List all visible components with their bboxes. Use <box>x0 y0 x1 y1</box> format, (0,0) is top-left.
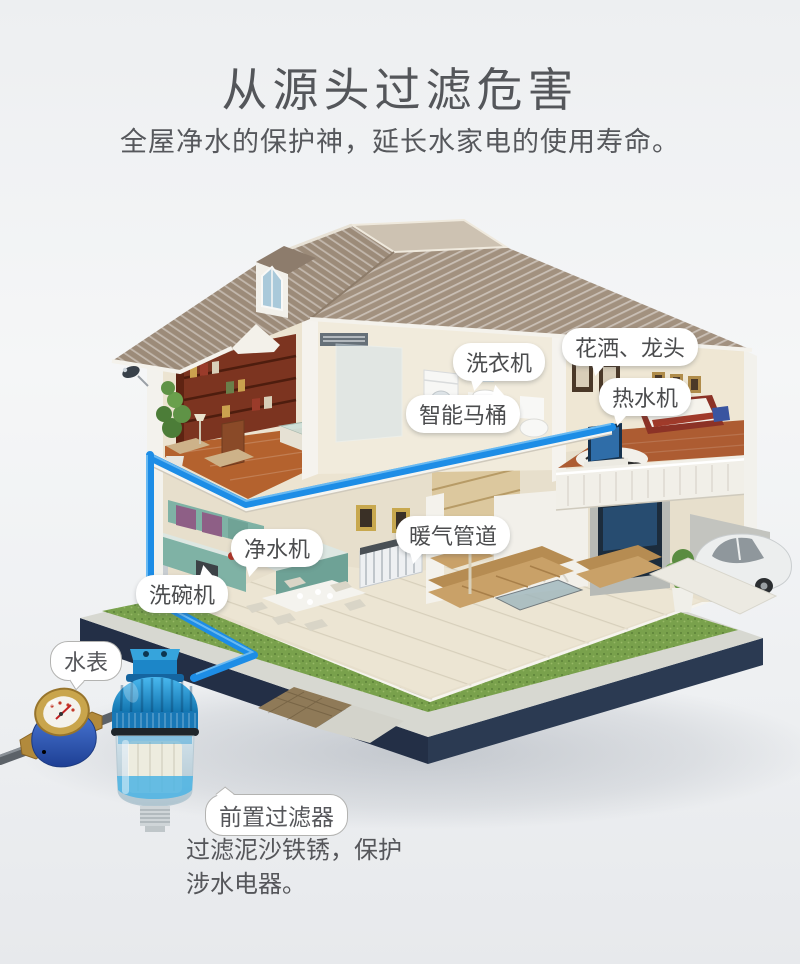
callout-shower-faucet-label: 花洒、龙头 <box>575 336 685 361</box>
callout-heating-pipes: 暖气管道 <box>396 516 510 554</box>
prefilter-description-line1: 过滤泥沙铁锈，保护 <box>186 834 402 868</box>
callout-water-heater: 热水机 <box>599 378 691 416</box>
callout-smart-toilet: 智能马桶 <box>406 395 520 433</box>
page-title: 从源头过滤危害 <box>0 54 800 120</box>
callout-dishwasher-label: 洗碗机 <box>149 583 215 608</box>
callout-shower-faucet: 花洒、龙头 <box>562 328 698 366</box>
callout-washing-machine: 洗衣机 <box>453 343 545 381</box>
callout-prefilter-label: 前置过滤器 <box>219 804 334 830</box>
callout-smart-toilet-label: 智能马桶 <box>419 403 507 428</box>
callout-water-heater-label: 热水机 <box>612 386 678 411</box>
callout-water-meter-label: 水表 <box>64 650 108 675</box>
callout-heating-pipes-label: 暖气管道 <box>409 524 497 549</box>
hall-picture-inner <box>360 509 372 527</box>
prefilter-description-line2: 涉水电器。 <box>186 868 402 902</box>
page-subtitle: 全屋净水的保护神，延长水家电的使用寿命。 <box>0 120 800 159</box>
callout-water-meter: 水表 <box>50 641 122 681</box>
callout-water-purifier: 净水机 <box>231 529 323 567</box>
prefilter-description: 过滤泥沙铁锈，保护 涉水电器。 <box>186 834 402 902</box>
callout-washing-machine-label: 洗衣机 <box>466 351 532 376</box>
promo-page: 从源头过滤危害 全屋净水的保护神，延长水家电的使用寿命。 洗衣机 花洒、龙头 热… <box>0 0 800 964</box>
callout-water-purifier-label: 净水机 <box>244 537 310 562</box>
callout-dishwasher: 洗碗机 <box>136 575 228 613</box>
callout-prefilter: 前置过滤器 <box>205 794 348 836</box>
